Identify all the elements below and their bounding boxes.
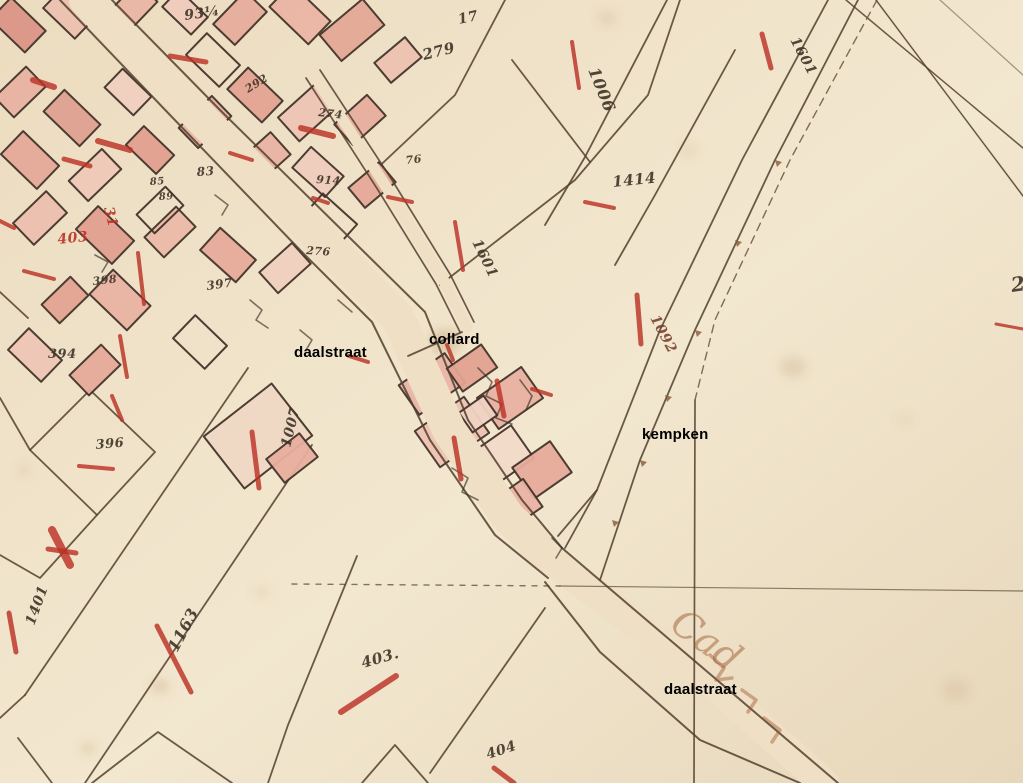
road-edge-line <box>694 400 695 783</box>
parchment-stain <box>18 465 30 475</box>
street-label-daalstraat-upper: daalstraat <box>294 344 367 361</box>
parcel-number: 914 <box>316 173 341 188</box>
area-label-kempken: kempken <box>642 426 708 443</box>
map-viewport[interactable]: 93¼1727910061601160114141092268385893983… <box>0 0 1023 783</box>
historical-map: 93¼1727910061601160114141092268385893983… <box>0 0 1023 783</box>
parcel-number: 396 <box>95 436 125 453</box>
street-label-daalstraat-lower: daalstraat <box>664 681 737 698</box>
parcel-number: 398 <box>92 272 118 287</box>
owner-label-collard: collard <box>429 331 480 348</box>
parchment-stain <box>81 742 95 754</box>
parcel-number: 83 <box>196 164 215 179</box>
parcel-number: 403 <box>57 229 89 248</box>
parcel-number: 85 <box>149 176 165 188</box>
parchment-stain <box>254 586 270 598</box>
parcel-number: 394 <box>48 347 77 362</box>
parchment-stain <box>598 11 616 25</box>
parchment-stain <box>942 679 970 701</box>
parcel-number: 89 <box>158 191 174 203</box>
parchment-stain <box>678 142 698 158</box>
parcel-number: 76 <box>405 152 423 167</box>
parcel-number: 276 <box>305 244 331 259</box>
parchment-stain <box>780 357 806 377</box>
parcel-number: 274 <box>317 106 344 122</box>
parchment-stain <box>898 415 912 425</box>
